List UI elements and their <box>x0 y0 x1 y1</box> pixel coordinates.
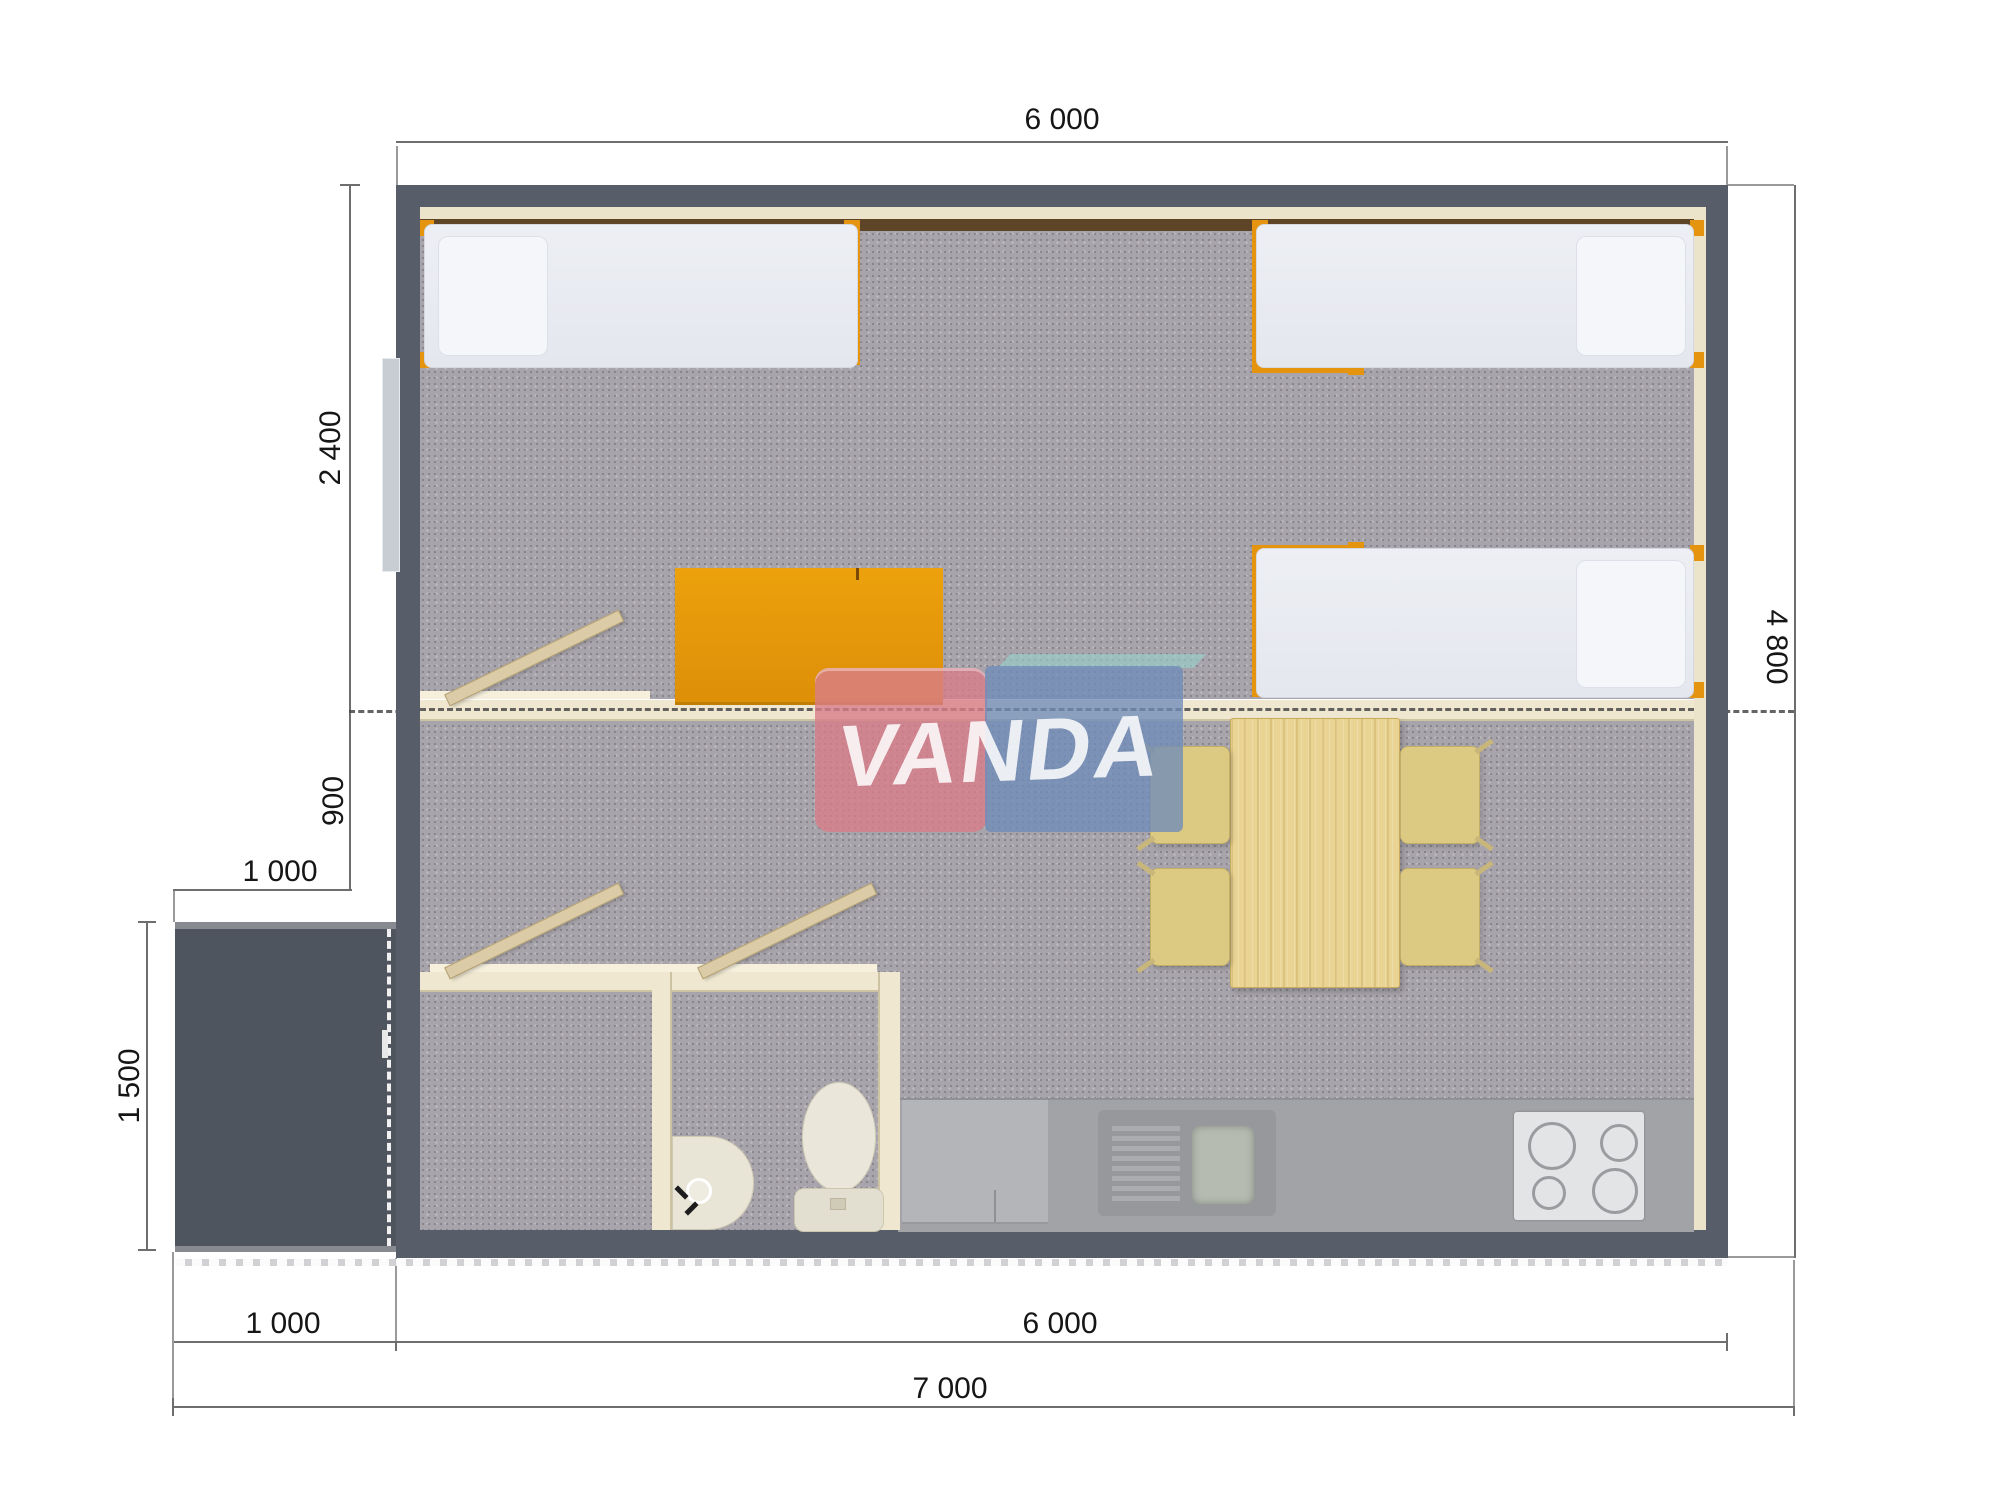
dim-ext-porch-topleft <box>173 891 175 922</box>
dim-bottom-house-width: 6 000 <box>960 1307 1160 1341</box>
wall-lining-top <box>420 207 1694 219</box>
sink-basin <box>1192 1126 1254 1204</box>
chair-bottom-left <box>1150 868 1230 966</box>
dim-tick-b2-left <box>172 1398 174 1416</box>
porch-top-edge <box>175 922 397 929</box>
dim-ext-right-top <box>1728 184 1794 186</box>
dim-line-bottom-2 <box>173 1406 1795 1408</box>
dim-ext-b2-right <box>1793 1260 1795 1406</box>
watermark-text: VANDA <box>790 669 1210 833</box>
dim-ext-b-mid <box>395 1258 397 1341</box>
dim-ext-b-left <box>172 1252 174 1406</box>
dim-line-right <box>1794 185 1796 1258</box>
dim-line-bottom-1 <box>173 1341 1728 1343</box>
wardrobe-door-seam <box>856 568 859 580</box>
dim-porch-depth: 1 500 <box>113 986 147 1186</box>
dim-ext-top-left <box>396 146 398 185</box>
chair-top-right <box>1400 746 1480 844</box>
dim-right-height: 4 800 <box>1759 547 1793 747</box>
dim-tick-porch-top <box>138 921 156 923</box>
bed1-pillow <box>438 236 548 356</box>
basin-faucet <box>686 1178 712 1204</box>
dim-line-porch-top <box>173 889 352 891</box>
dim-tick-left-top <box>340 184 360 186</box>
fridge-seam <box>994 1190 996 1222</box>
bed3-pillow <box>1576 560 1686 688</box>
toilet-flush-button <box>830 1198 846 1210</box>
fridge-top <box>902 1100 1048 1224</box>
window-left-wall <box>382 358 400 572</box>
sink-drainboard <box>1112 1126 1180 1202</box>
stove-burner-4 <box>1592 1168 1638 1214</box>
stove-burner-3 <box>1532 1176 1566 1210</box>
dim-bottom-total-width: 7 000 <box>850 1372 1050 1406</box>
porch-wall-dashed-joint <box>387 929 391 1246</box>
entry-door-handle <box>382 1030 388 1058</box>
dim-ext-top-right <box>1726 146 1728 185</box>
toilet-base <box>794 1188 884 1232</box>
dim-left-bedroom-depth: 2 400 <box>314 348 348 548</box>
bed2-pillow <box>1576 236 1686 356</box>
dim-tick-porch-bottom <box>138 1249 156 1251</box>
dim-porch-width: 1 000 <box>180 855 380 889</box>
floor-plan-canvas: 6 000 2 400 900 1 000 1 500 4 800 1 000 … <box>0 0 2000 1502</box>
bathroom-wall-divider <box>652 972 672 1230</box>
porch-bottom-edge <box>175 1246 397 1252</box>
dim-ext-right-bottom <box>1728 1256 1794 1258</box>
toilet-lid <box>802 1082 876 1192</box>
stove-burner-2 <box>1600 1124 1638 1162</box>
dim-top-width: 6 000 <box>962 103 1162 137</box>
chair-bottom-right <box>1400 868 1480 966</box>
ground-edge-dashes <box>175 1259 1728 1266</box>
stove-burner-1 <box>1528 1122 1576 1170</box>
porch-deck <box>175 929 397 1246</box>
dining-table <box>1230 718 1400 988</box>
dim-line-top <box>396 141 1728 143</box>
dim-bottom-porch-width: 1 000 <box>183 1307 383 1341</box>
dim-tick-b1-right <box>1726 1333 1728 1351</box>
